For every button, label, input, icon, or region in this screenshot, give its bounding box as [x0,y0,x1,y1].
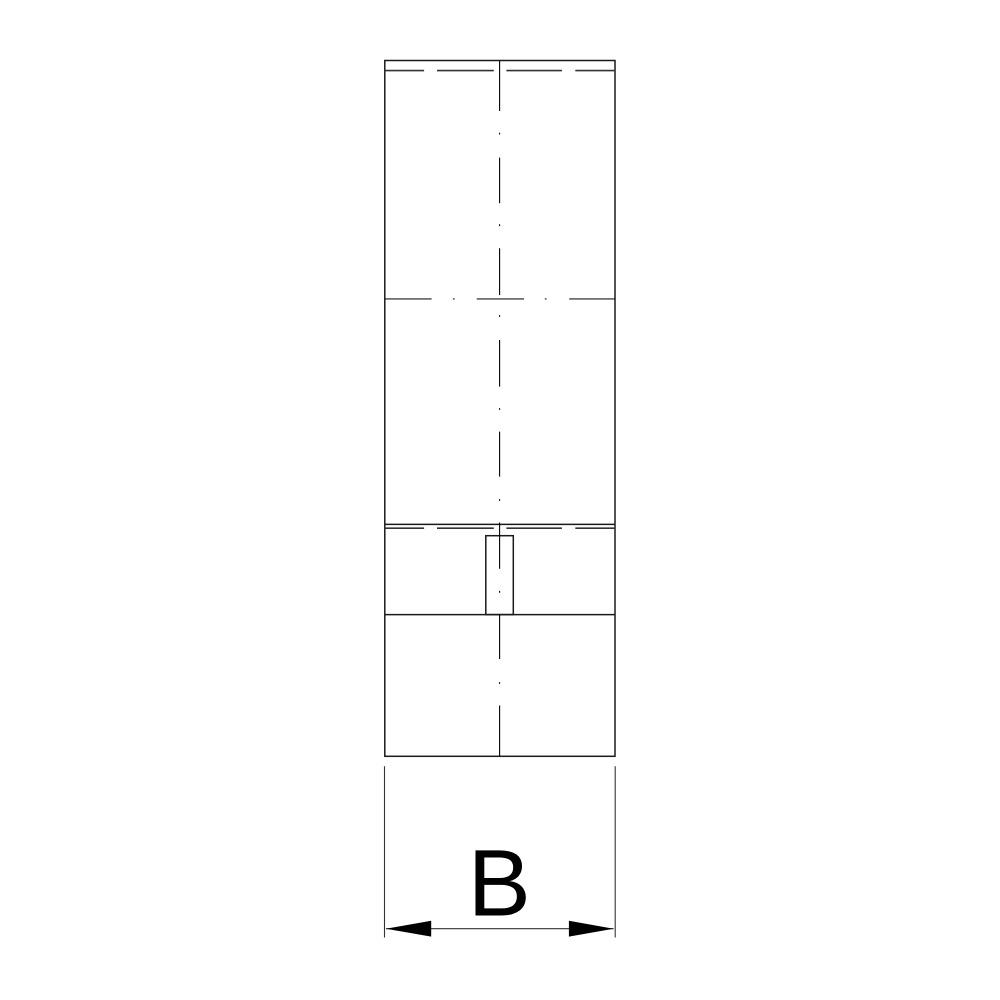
svg-text:B: B [468,831,531,937]
